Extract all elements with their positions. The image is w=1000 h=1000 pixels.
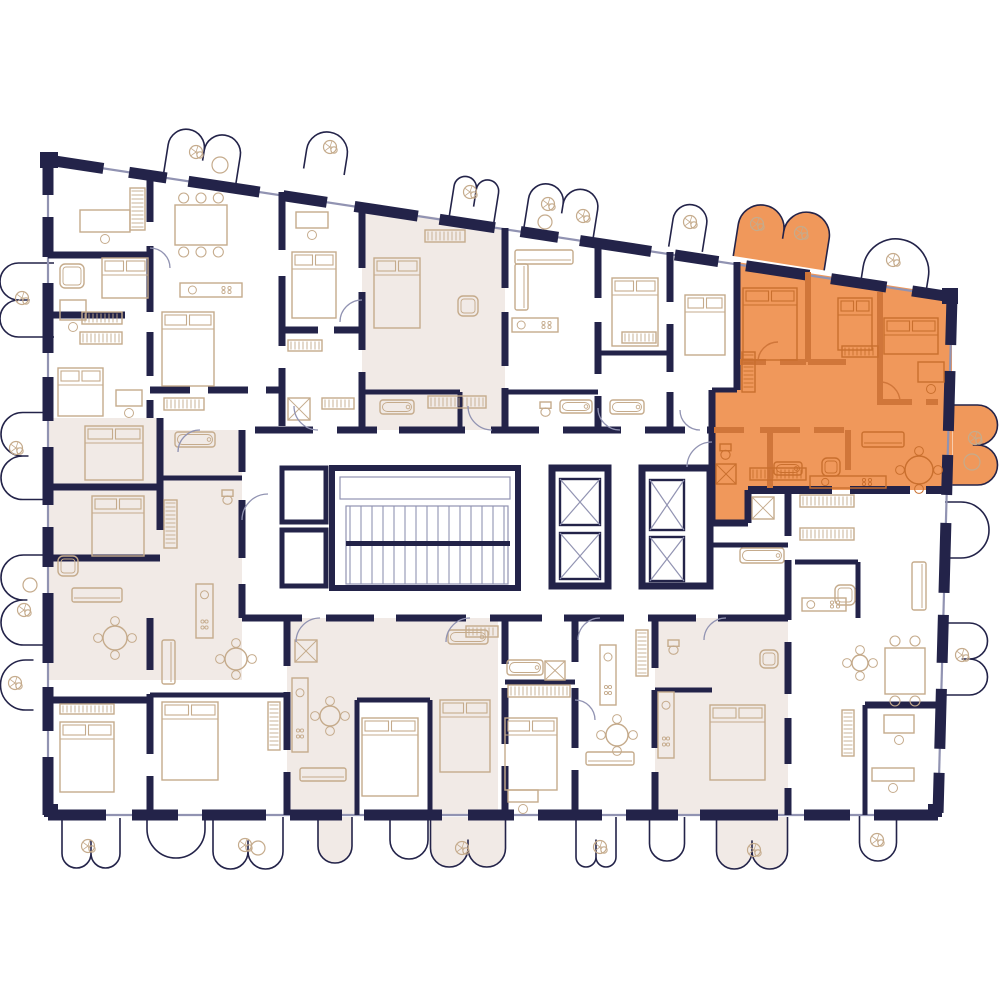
- furniture-arm: [835, 585, 855, 605]
- stair-landing: [340, 477, 510, 499]
- furniture-desk: [884, 715, 914, 745]
- balcony-bottom-3: [213, 817, 283, 869]
- furniture-sofa: [586, 752, 634, 765]
- room-overlays-layer: [357, 700, 430, 815]
- floor-plan-canvas: [0, 0, 1000, 1000]
- furniture-desk: [116, 390, 142, 418]
- furniture-war: [288, 340, 322, 351]
- balcony-left-3: [1, 660, 34, 710]
- balcony-bottom-1: [62, 818, 120, 868]
- balcony-top-5: [669, 202, 710, 252]
- door-swing-8: [242, 494, 268, 520]
- furniture-sofa: [515, 250, 573, 264]
- balcony-left-2: [1, 555, 49, 645]
- exterior-corner-1: [942, 288, 958, 304]
- balcony-bottom-6: [431, 817, 506, 867]
- balcony-top-orange: [733, 202, 832, 271]
- furniture-war: [130, 188, 145, 230]
- furniture-desk: [872, 768, 914, 793]
- furniture-tub: [610, 400, 644, 414]
- furniture-war: [80, 332, 122, 344]
- furniture-war: [322, 398, 354, 409]
- furniture-bed: [292, 252, 336, 318]
- furniture-tbl: [885, 636, 925, 706]
- balcony-bottom-8: [650, 817, 685, 861]
- floor-plan-page: [0, 0, 1000, 1000]
- furniture-arm: [60, 264, 84, 288]
- furniture-tub: [740, 548, 784, 563]
- furniture-shw: [752, 497, 774, 519]
- furniture-war: [164, 398, 204, 410]
- furniture-war: [800, 495, 854, 507]
- balcony-bottom-9: [717, 817, 788, 869]
- furniture-war: [60, 704, 114, 714]
- furniture-war: [622, 332, 656, 343]
- furniture-desk: [80, 210, 130, 244]
- balcony-right-2: [945, 502, 989, 558]
- door-swing-0: [294, 406, 318, 430]
- furniture-kit: [180, 283, 242, 297]
- stair-elevator-core: [282, 468, 710, 588]
- furniture-war: [508, 685, 570, 697]
- furniture-bed: [60, 722, 114, 792]
- corridor-storage-1: [282, 530, 326, 586]
- door-swing-9: [687, 442, 712, 467]
- furniture-sofa: [515, 264, 528, 310]
- furniture-tbl: [175, 193, 227, 257]
- furniture-desk: [296, 212, 328, 240]
- unit-pink-bottom-right: [655, 618, 788, 815]
- furniture-bed: [162, 702, 218, 780]
- furniture-war: [800, 528, 854, 540]
- stair-rail: [346, 541, 510, 546]
- furniture-bed: [505, 718, 557, 790]
- balcony-bottom-2: [147, 818, 205, 858]
- balcony-bottom-5: [390, 817, 428, 859]
- balcony-bottom-4: [318, 817, 352, 863]
- unit-pink-left: [48, 418, 242, 680]
- furniture-bed: [612, 278, 658, 346]
- furniture-tub: [507, 660, 543, 675]
- furniture-bed: [685, 295, 725, 355]
- furniture-bed: [102, 258, 148, 298]
- room-overlay-0: [357, 700, 430, 815]
- furniture-shw: [288, 398, 310, 420]
- furniture-kit: [512, 318, 558, 332]
- furniture-bed: [58, 368, 103, 416]
- furniture-war: [842, 710, 854, 756]
- exterior-corner-2: [928, 804, 942, 817]
- furniture-war: [268, 702, 280, 750]
- exterior-corner-0: [40, 152, 58, 168]
- furniture-kit: [600, 645, 616, 705]
- balcony-top-2: [304, 129, 351, 175]
- furniture-rtbl: [843, 646, 878, 681]
- exterior-corner-3: [44, 804, 58, 817]
- furniture-sofa: [912, 562, 926, 610]
- stair-enclosure: [332, 468, 518, 588]
- furniture-rtbl: [597, 715, 638, 756]
- furniture-shw: [545, 661, 565, 680]
- furniture-wc: [540, 402, 551, 416]
- furniture-tub: [560, 400, 592, 413]
- furniture-war: [636, 630, 648, 676]
- corridor-storage-0: [282, 468, 326, 522]
- furniture-bed: [162, 312, 214, 386]
